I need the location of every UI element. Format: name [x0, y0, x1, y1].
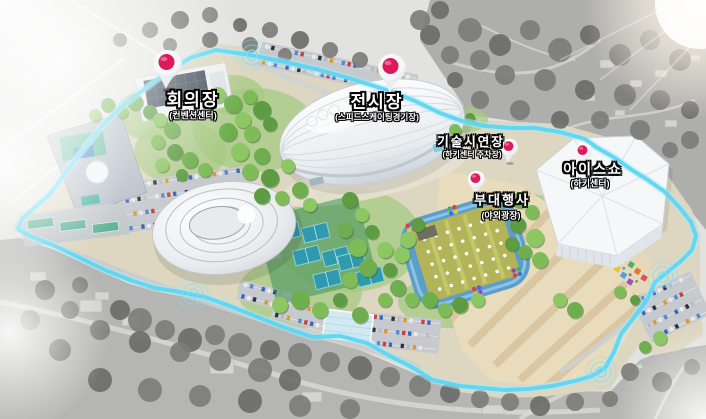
aerial-map: 회의장(컨벤션센터)전시장(스피드스케이팅경기장)기술시연장(하키센터 주차장)…: [0, 0, 706, 419]
aerial-map-illustration: [0, 0, 706, 419]
